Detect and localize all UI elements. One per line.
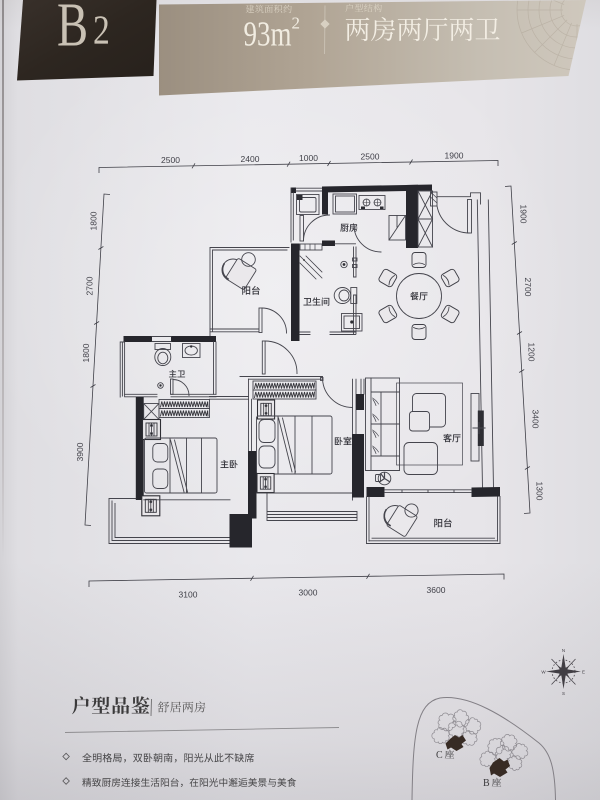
svg-text:2400: 2400 bbox=[241, 154, 260, 164]
svg-text:2: 2 bbox=[292, 14, 301, 33]
svg-text:3000: 3000 bbox=[299, 587, 318, 597]
svg-text:3100: 3100 bbox=[179, 589, 198, 599]
svg-text:W: W bbox=[541, 670, 546, 675]
svg-text:C: C bbox=[436, 750, 443, 761]
svg-text:S: S bbox=[562, 691, 565, 696]
svg-text:1800: 1800 bbox=[89, 211, 99, 230]
svg-text:3400: 3400 bbox=[531, 410, 541, 429]
svg-text:1900: 1900 bbox=[519, 205, 529, 224]
svg-text:B: B bbox=[57, 0, 88, 59]
svg-text:3600: 3600 bbox=[427, 585, 446, 595]
svg-text:1900: 1900 bbox=[445, 150, 464, 160]
svg-text:1200: 1200 bbox=[527, 343, 537, 362]
svg-text:1800: 1800 bbox=[81, 343, 91, 362]
svg-text:93m: 93m bbox=[244, 15, 292, 54]
svg-text:3900: 3900 bbox=[75, 442, 85, 461]
svg-text:B: B bbox=[483, 778, 490, 789]
svg-text:1000: 1000 bbox=[299, 153, 318, 163]
svg-text:N: N bbox=[562, 648, 565, 653]
svg-text:2500: 2500 bbox=[361, 152, 380, 162]
svg-text:1300: 1300 bbox=[535, 482, 545, 501]
svg-text:2500: 2500 bbox=[161, 155, 180, 165]
svg-text:2700: 2700 bbox=[85, 276, 95, 295]
svg-text:E: E bbox=[582, 670, 585, 675]
svg-text:2700: 2700 bbox=[523, 278, 533, 297]
svg-text:2: 2 bbox=[93, 9, 110, 54]
